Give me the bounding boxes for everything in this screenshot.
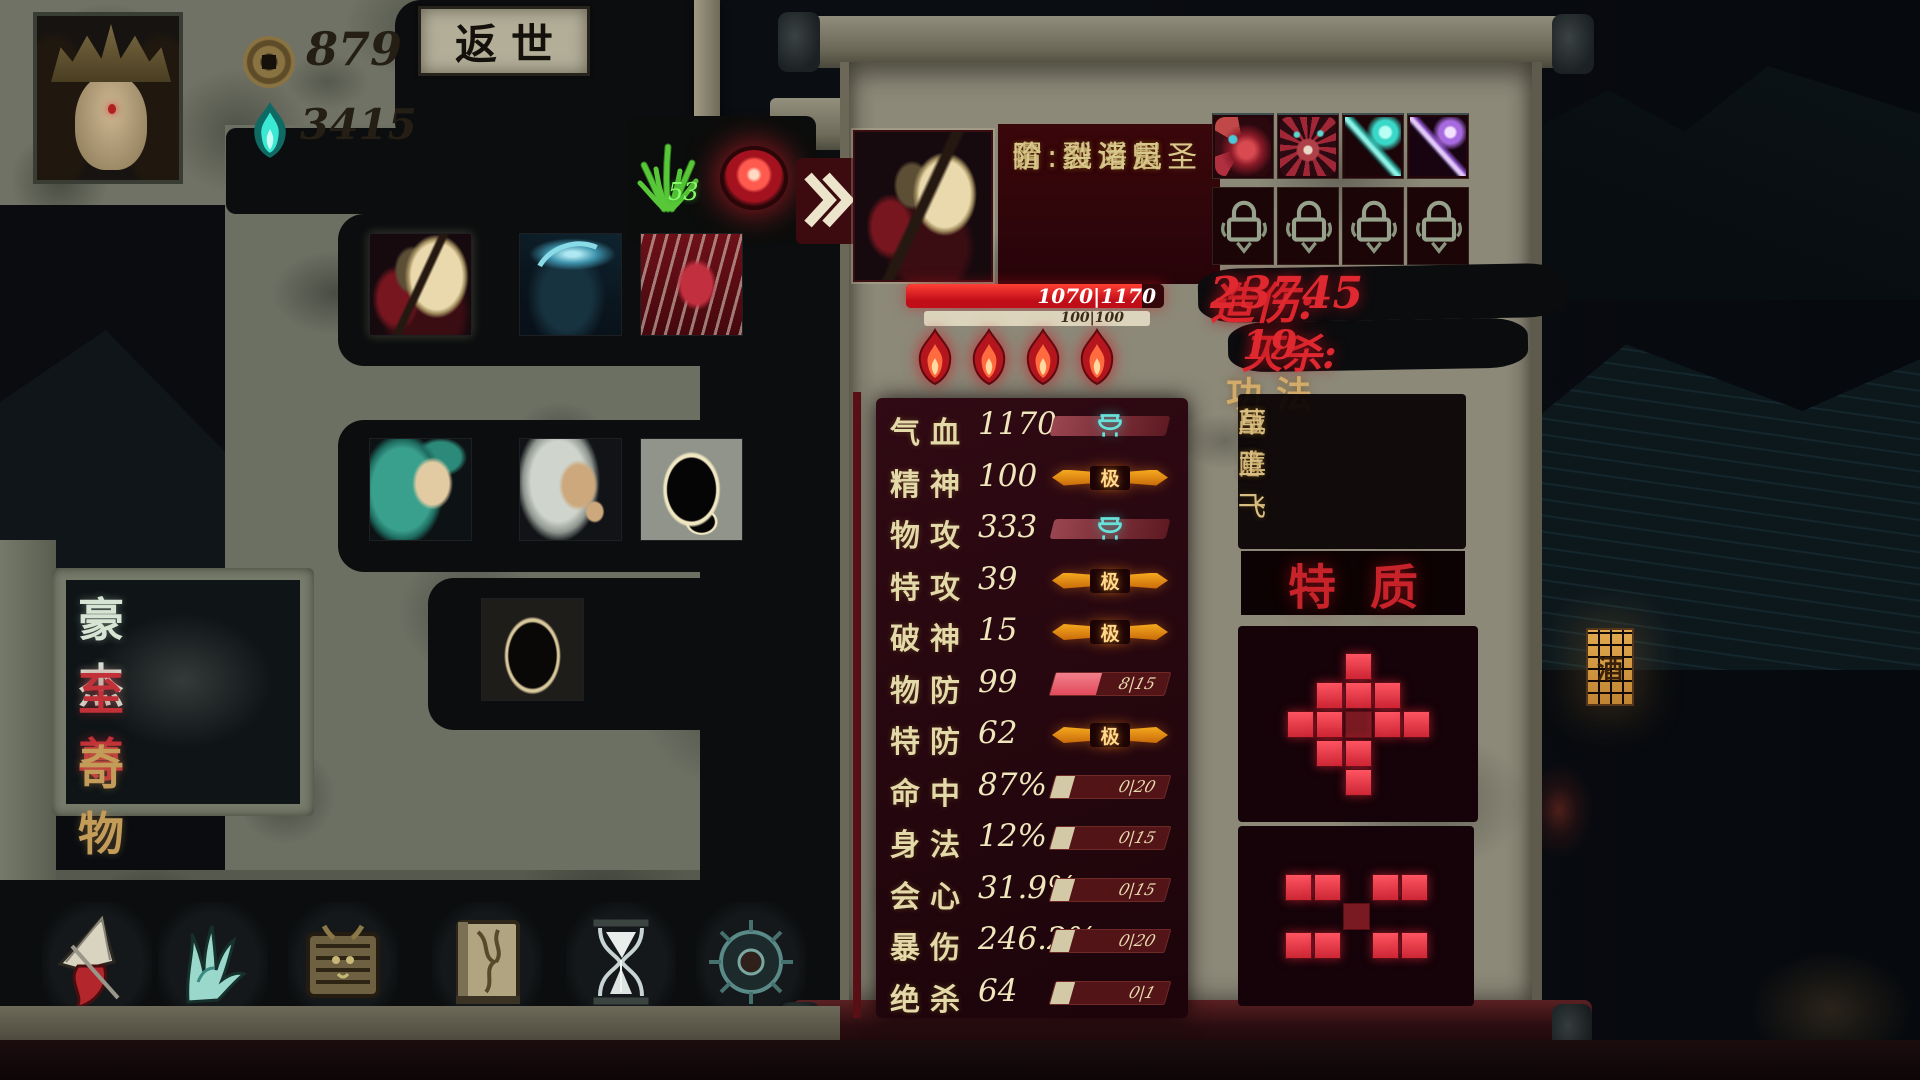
bar-cap: [1050, 879, 1076, 901]
stat-bar-progress: 8|15: [1049, 672, 1172, 696]
violet-spear-icon: [1410, 117, 1466, 176]
stat-bar-max: 极: [1052, 723, 1168, 747]
trait-cell: [1403, 711, 1430, 738]
roster-portrait-masked-demon[interactable]: [369, 233, 472, 336]
bar-text: 0|20: [1116, 777, 1157, 796]
stat-label: 物攻: [890, 511, 970, 555]
crimson-dragon-icon: [1215, 117, 1271, 176]
stat-bar-progress: 0|15: [1049, 826, 1172, 850]
scroll-top-roller: [788, 16, 1594, 68]
locked-equip-slot[interactable]: [1342, 187, 1404, 265]
character-headshot[interactable]: [853, 130, 993, 282]
spirit-text: 100|100: [1060, 310, 1124, 326]
roster-portrait-shadow-silhouette[interactable]: [640, 438, 743, 541]
blood-orb-icon[interactable]: [720, 146, 788, 210]
trait-cell: [1316, 711, 1343, 738]
trait-cell: [1374, 711, 1401, 738]
equip-slot-jade-spear[interactable]: [1342, 113, 1404, 179]
stat-bar-progress: 0|20: [1049, 929, 1172, 953]
bar-cap: [1050, 930, 1076, 952]
equip-slot-violet-spear[interactable]: [1407, 113, 1469, 179]
rage-flame-icon: [1020, 328, 1066, 388]
stat-label: 特防: [890, 717, 970, 761]
stat-label: 气血: [890, 408, 970, 452]
trait-board-1[interactable]: [1238, 626, 1478, 822]
traits-header: 特质: [1241, 551, 1465, 615]
locked-equip-slot[interactable]: [1212, 187, 1274, 265]
rage-flame-icon: [966, 328, 1012, 388]
building-silhouette: [1540, 0, 1920, 300]
trait-cell: [1372, 874, 1399, 901]
game-screen: 酒 879 3415 返世 53: [0, 0, 1920, 1080]
category-panel: 豪杰至尊奇物: [52, 568, 314, 816]
trait-cell: [1374, 682, 1401, 709]
locked-equip-slot[interactable]: [1407, 187, 1469, 265]
trait-cell: [1401, 932, 1428, 959]
skill-entry-2[interactable]: 草上飞: [1238, 402, 1272, 528]
stat-label: 破神: [890, 614, 970, 658]
trait-cell: [1345, 653, 1372, 680]
scroll-red-rule: [853, 392, 861, 1018]
trait-cell: [1345, 740, 1372, 767]
stats-panel: 气血1170精神100极物攻333特攻39极破神15极物防998|15特防62极…: [876, 398, 1188, 1018]
pagoda-roof-silhouette: [1500, 300, 1920, 670]
trait-cell: [1343, 903, 1370, 930]
crimson-witch-art: [641, 234, 742, 335]
stone-ledge: [0, 1006, 840, 1044]
trait-cell: [1285, 932, 1312, 959]
spirit-bar: 100|100: [924, 311, 1150, 326]
character-rank: 阶:裂诸灵: [1012, 134, 1167, 182]
bar-cap: [1050, 982, 1076, 1004]
bar-cap: [1050, 827, 1076, 849]
bottom-band: [0, 1040, 1920, 1080]
soul-flame-icon: [246, 100, 294, 162]
player-portrait[interactable]: [33, 12, 183, 184]
trait-cell: [1314, 932, 1341, 959]
stat-label: 物防: [890, 666, 970, 710]
trait-cell: [1401, 874, 1428, 901]
jade-maiden-art: [370, 439, 471, 540]
azure-beast-art: [520, 234, 621, 335]
trait-cell: [1345, 711, 1372, 738]
stat-label: 会心: [890, 872, 970, 916]
coin-icon: [243, 36, 295, 88]
herb-count: 53: [668, 178, 699, 206]
trait-cell: [1345, 769, 1372, 796]
stat-label: 精神: [890, 460, 970, 504]
trait-board-2[interactable]: [1238, 826, 1474, 1006]
stat-label: 身法: [890, 820, 970, 864]
scroll-cap-right: [1552, 14, 1594, 74]
trait-cell: [1316, 740, 1343, 767]
bar-text: 0|1: [1127, 983, 1158, 1002]
trait-cell: [1316, 682, 1343, 709]
trait-cell: [1285, 874, 1312, 901]
rage-flame-icon: [1074, 328, 1120, 388]
hp-bar: 1070|1170: [906, 284, 1164, 308]
stat-label: 命中: [890, 769, 970, 813]
scroll-cap-left: [778, 12, 820, 72]
locked-equip-slot[interactable]: [1277, 187, 1339, 265]
page-chevron-icon[interactable]: [802, 168, 854, 232]
masked-demon-art: [855, 132, 991, 280]
stat-bar-max: 极: [1052, 466, 1168, 490]
roster-portrait-crimson-witch[interactable]: [640, 233, 743, 336]
trait-cell: [1372, 932, 1399, 959]
stat-bar-emblem: [1052, 517, 1168, 541]
pale-swordswoman-art: [520, 439, 621, 540]
portrait-third-eye: [108, 104, 116, 114]
equip-slot-crimson-dragon[interactable]: [1212, 113, 1274, 179]
stat-bar-max: 极: [1052, 569, 1168, 593]
rage-flame-icon: [912, 328, 958, 388]
category-tab-2[interactable]: 奇物: [52, 732, 78, 864]
bar-text: 0|15: [1116, 880, 1157, 899]
roster-portrait-dark-recruit[interactable]: [481, 598, 584, 701]
roster-portrait-azure-beast[interactable]: [519, 233, 622, 336]
stat-label: 特攻: [890, 563, 970, 607]
character-name-block: 名:血浮屠 谓:戮海魁圣 阶:裂诸灵: [998, 124, 1220, 284]
soul-count: 3415: [300, 100, 417, 149]
bar-cap: [1050, 776, 1076, 798]
stat-bar-emblem: [1052, 414, 1168, 438]
jade-spear-icon: [1345, 117, 1401, 176]
coin-count: 879: [306, 22, 402, 76]
demon-visage-icon: [1280, 117, 1336, 176]
return-world-button[interactable]: 返世: [418, 6, 590, 76]
stat-bar-progress: 0|1: [1049, 981, 1172, 1005]
trait-cell: [1287, 711, 1314, 738]
hp-text: 1070|1170: [1037, 284, 1156, 308]
left-roof-silhouette: [0, 330, 235, 570]
bar-text: 8|15: [1116, 674, 1157, 693]
trait-cell: [1345, 682, 1372, 709]
bar-text: 0|15: [1116, 828, 1157, 847]
equip-slot-demon-visage[interactable]: [1277, 113, 1339, 179]
masked-demon-art: [370, 234, 471, 335]
dark-recruit-art: [482, 599, 583, 700]
bar-text: 0|20: [1116, 931, 1157, 950]
roster-portrait-jade-maiden[interactable]: [369, 438, 472, 541]
bar-fill: [1050, 673, 1102, 695]
trait-cell: [1314, 874, 1341, 901]
skills-box: 压阵战意一草上飞: [1238, 394, 1466, 549]
stat-label: 绝杀: [890, 975, 970, 1019]
shadow-silhouette-art: [641, 439, 742, 540]
stat-bar-progress: 0|15: [1049, 878, 1172, 902]
roster-portrait-pale-swordswoman[interactable]: [519, 438, 622, 541]
stone-pillar: [0, 540, 56, 886]
stat-bar-progress: 0|20: [1049, 775, 1172, 799]
stat-bar-max: 极: [1052, 620, 1168, 644]
tavern-sign: 酒: [1586, 628, 1634, 706]
portrait-face: [75, 74, 147, 170]
stat-label: 暴伤: [890, 923, 970, 967]
